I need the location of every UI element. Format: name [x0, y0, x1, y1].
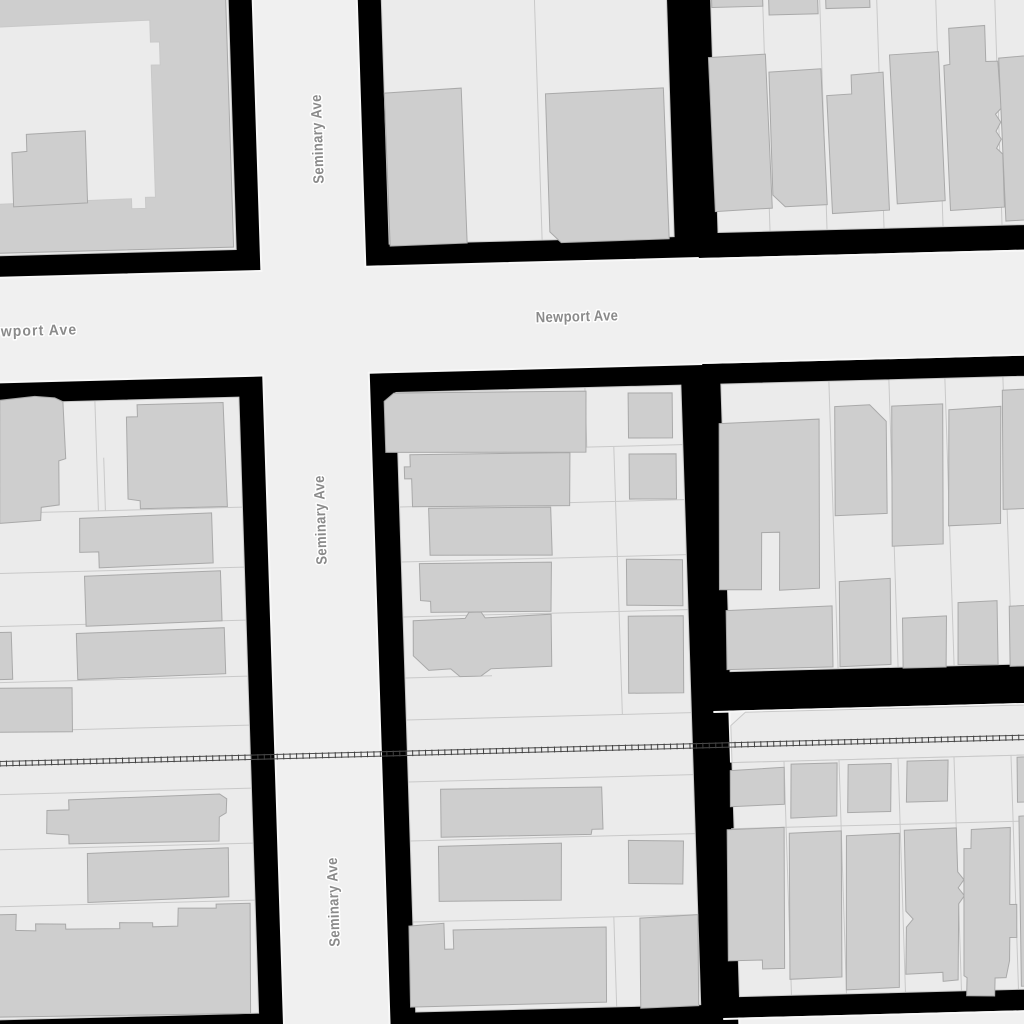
- svg-text:Newport Ave: Newport Ave: [536, 306, 619, 325]
- svg-text:Newport Ave: Newport Ave: [0, 322, 77, 341]
- svg-text:Seminary Ave: Seminary Ave: [307, 94, 327, 184]
- svg-text:Seminary Ave: Seminary Ave: [310, 475, 330, 565]
- svg-text:Seminary Ave: Seminary Ave: [323, 857, 343, 947]
